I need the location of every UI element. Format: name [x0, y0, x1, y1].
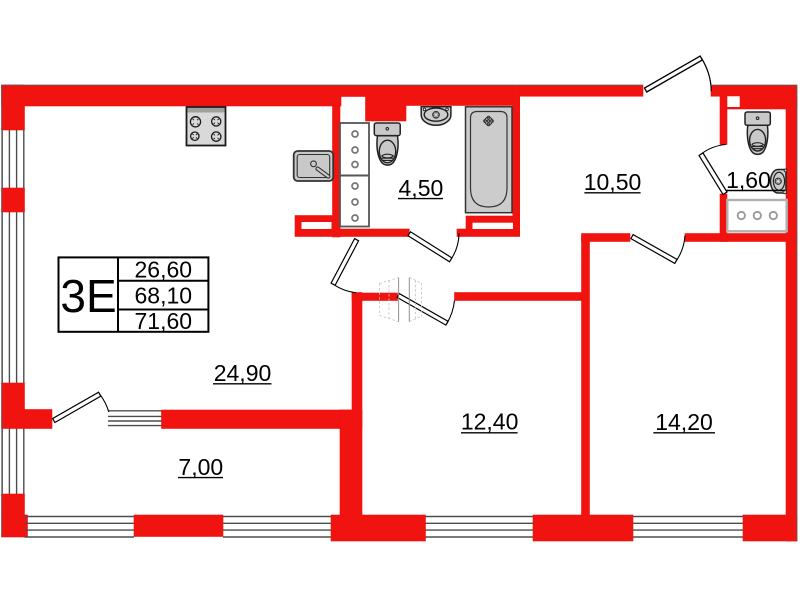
- svg-text:71,60: 71,60: [135, 308, 193, 334]
- svg-text:4,50: 4,50: [399, 175, 444, 201]
- svg-text:68,10: 68,10: [135, 282, 193, 308]
- svg-text:14,20: 14,20: [655, 409, 713, 435]
- svg-text:3Е: 3Е: [60, 270, 116, 322]
- svg-text:12,40: 12,40: [461, 409, 519, 435]
- svg-text:7,00: 7,00: [178, 454, 223, 480]
- svg-text:26,60: 26,60: [135, 257, 193, 283]
- svg-text:1,60: 1,60: [726, 167, 771, 193]
- svg-text:10,50: 10,50: [584, 169, 642, 195]
- svg-text:24,90: 24,90: [214, 360, 272, 386]
